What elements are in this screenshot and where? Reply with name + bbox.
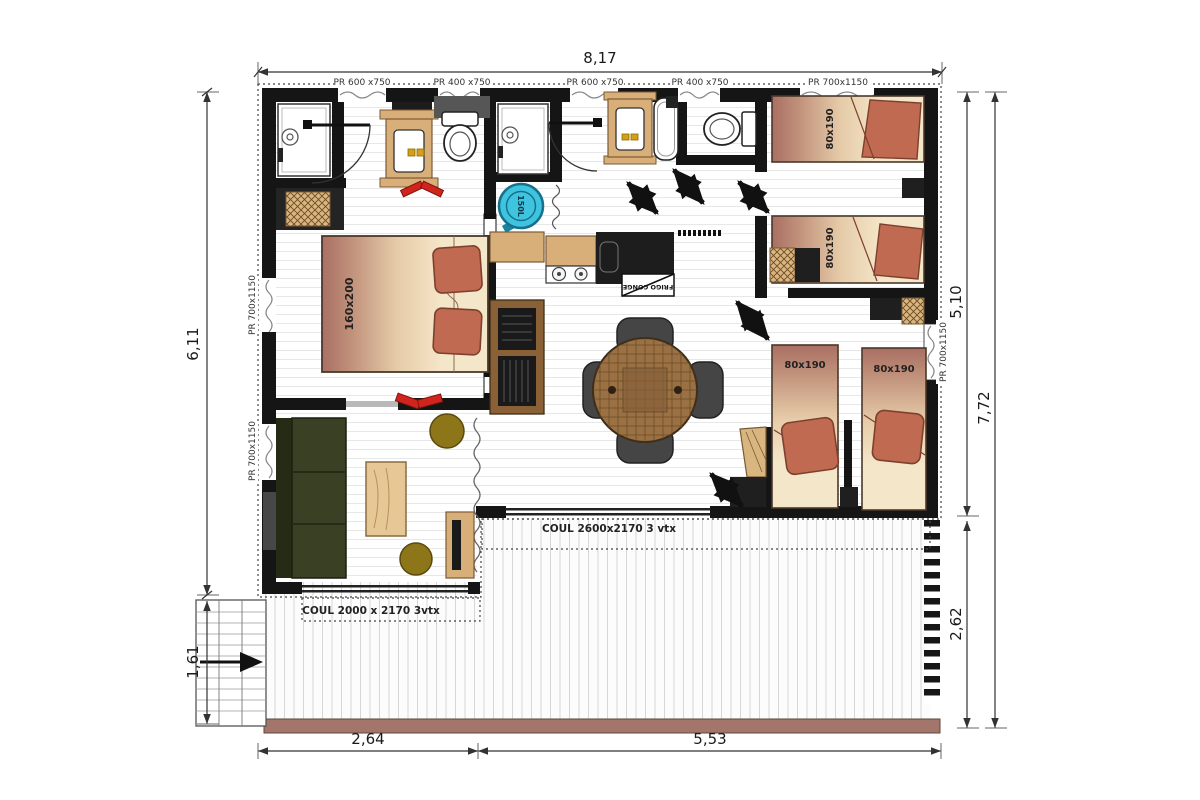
pillow (433, 308, 482, 355)
washbasin-2 (604, 92, 656, 164)
washbasin-1 (380, 102, 438, 187)
pillow (781, 417, 840, 476)
nightstand (840, 487, 858, 507)
fridge-label: FRIGO CONGE (623, 283, 674, 291)
nightstand (902, 178, 924, 198)
window-label-right-1: PR 700x1150 (939, 322, 949, 382)
dim-height-right-total: 7,72 (975, 391, 993, 424)
terrace-steps-edge (924, 518, 940, 704)
dim-ramp-height: 1,61 (184, 645, 202, 678)
sliding-door-label-main: COUL 2600x2170 3 vtx (542, 523, 676, 535)
window-label-top-4: PR 400 x750 (671, 78, 728, 88)
master-bed: 160x200 (322, 236, 488, 372)
tv (452, 520, 461, 570)
dim-terrace-height: 2,62 (947, 607, 965, 640)
single-bed-1-label: 80x190 (825, 108, 836, 149)
pouf (400, 543, 432, 575)
single-bed-4-label: 80x190 (873, 364, 914, 375)
sofa-back (276, 418, 292, 578)
wardrobe (870, 298, 902, 320)
water-heater-label: 150L (516, 195, 525, 217)
tap-icon (408, 149, 415, 156)
sofa (292, 418, 346, 578)
single-bed-2-label: 80x190 (825, 227, 836, 268)
dim-height-left: 6,11 (184, 327, 202, 360)
single-bed-3-label: 80x190 (784, 360, 825, 371)
fridge-freezer (622, 232, 674, 274)
pillow (872, 410, 925, 465)
dash-row (678, 230, 721, 236)
window-label-top-1: PR 600 x750 (333, 78, 390, 88)
window-label-top-5: PR 700x1150 (808, 78, 868, 88)
coffee-table (366, 462, 406, 536)
window-label-top-3: PR 600 x750 (566, 78, 623, 88)
window-label-top-2: PR 400 x750 (433, 78, 490, 88)
pillow (433, 245, 483, 293)
floor-plan-page: 150L 160x200 80x190 80x190 (0, 0, 1200, 800)
dim-bottom-left: 2,64 (351, 730, 384, 748)
dim-height-right-main: 5,10 (947, 285, 965, 318)
pouf (430, 414, 464, 448)
pocket-door (346, 401, 398, 407)
sliding-door-label-living: COUL 2000 x 2170 3vtx (302, 605, 440, 617)
window-label-left-2: PR 700x1150 (248, 421, 258, 481)
dim-bottom-right: 5,53 (693, 730, 726, 748)
tap-icon (622, 134, 629, 140)
dim-width-total: 8,17 (583, 49, 616, 67)
shower-room-2 (498, 104, 548, 174)
master-bed-label: 160x200 (343, 277, 356, 330)
window-label-left-1: PR 700x1150 (248, 275, 258, 335)
floor-plan-drawing: 150L 160x200 80x190 80x190 (0, 0, 1200, 800)
